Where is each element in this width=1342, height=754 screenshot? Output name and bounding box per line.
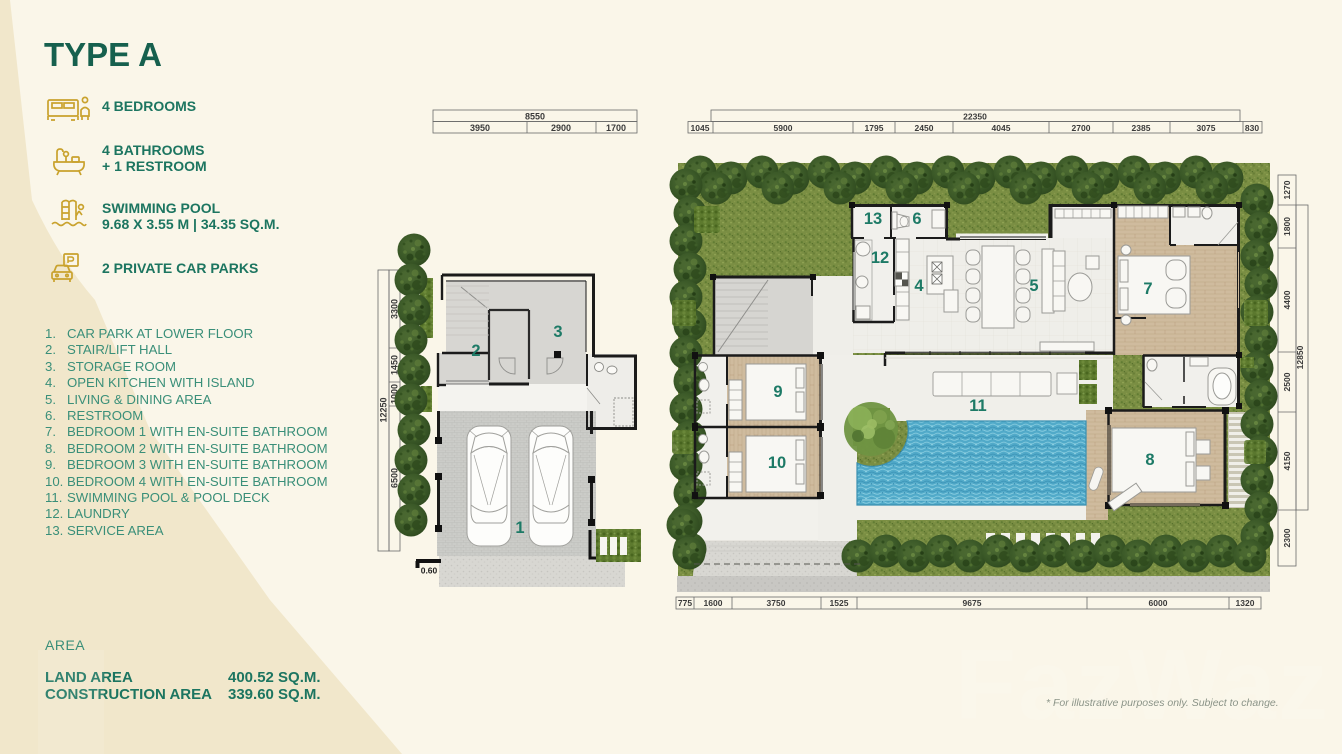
svg-text:1700: 1700 bbox=[606, 123, 626, 133]
svg-text:3750: 3750 bbox=[767, 598, 786, 608]
svg-text:12850: 12850 bbox=[1295, 345, 1305, 369]
svg-text:3075: 3075 bbox=[1197, 123, 1216, 133]
svg-text:8550: 8550 bbox=[525, 112, 545, 122]
svg-text:1795: 1795 bbox=[865, 123, 884, 133]
svg-text:3950: 3950 bbox=[470, 123, 490, 133]
svg-text:6: 6 bbox=[912, 210, 921, 228]
svg-text:2700: 2700 bbox=[1072, 123, 1091, 133]
svg-text:4: 4 bbox=[914, 277, 924, 295]
svg-text:11: 11 bbox=[969, 397, 986, 415]
svg-text:1045: 1045 bbox=[691, 123, 710, 133]
svg-text:775: 775 bbox=[678, 598, 692, 608]
svg-text:1600: 1600 bbox=[704, 598, 723, 608]
svg-text:12250: 12250 bbox=[379, 397, 389, 422]
svg-text:0.60: 0.60 bbox=[421, 566, 438, 576]
svg-text:1: 1 bbox=[515, 519, 524, 537]
svg-text:7: 7 bbox=[1143, 280, 1152, 298]
svg-text:2385: 2385 bbox=[1132, 123, 1151, 133]
svg-text:2450: 2450 bbox=[915, 123, 934, 133]
svg-text:1525: 1525 bbox=[830, 598, 849, 608]
svg-text:4045: 4045 bbox=[992, 123, 1011, 133]
svg-text:2900: 2900 bbox=[551, 123, 571, 133]
svg-text:12: 12 bbox=[871, 249, 889, 267]
svg-text:8: 8 bbox=[1145, 451, 1154, 469]
svg-text:2: 2 bbox=[471, 342, 480, 360]
svg-text:5900: 5900 bbox=[774, 123, 793, 133]
svg-text:2300: 2300 bbox=[1282, 528, 1292, 547]
svg-text:9: 9 bbox=[773, 383, 782, 401]
svg-text:1270: 1270 bbox=[1282, 180, 1292, 199]
svg-text:1320: 1320 bbox=[1236, 598, 1255, 608]
svg-text:6500: 6500 bbox=[390, 468, 400, 488]
svg-text:4150: 4150 bbox=[1282, 451, 1292, 470]
svg-text:10: 10 bbox=[768, 454, 786, 472]
svg-text:2500: 2500 bbox=[1282, 372, 1292, 391]
svg-text:4400: 4400 bbox=[1282, 290, 1292, 309]
svg-text:6000: 6000 bbox=[1149, 598, 1168, 608]
svg-text:9675: 9675 bbox=[963, 598, 982, 608]
svg-text:22350: 22350 bbox=[963, 112, 987, 122]
svg-text:13: 13 bbox=[864, 210, 882, 228]
svg-text:830: 830 bbox=[1245, 123, 1259, 133]
svg-text:1800: 1800 bbox=[1282, 217, 1292, 236]
svg-text:3: 3 bbox=[553, 323, 562, 341]
svg-text:5: 5 bbox=[1029, 277, 1038, 295]
